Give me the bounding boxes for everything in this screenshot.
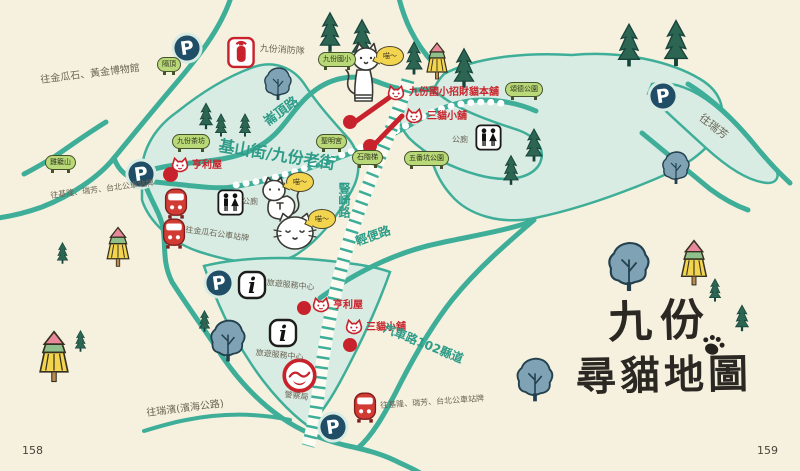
bus-stop-icon bbox=[163, 186, 189, 220]
fire-station-icon bbox=[227, 36, 255, 69]
lucky-cat-shop-icon bbox=[311, 296, 331, 314]
shop-label: 九份國小招財貓本舖 bbox=[409, 88, 499, 98]
page-number-right: 159 bbox=[757, 444, 778, 457]
location-dot bbox=[297, 301, 311, 315]
bus-stop-icon bbox=[161, 216, 187, 250]
colorful-tree-icon bbox=[104, 226, 132, 270]
svg-text:P: P bbox=[211, 273, 227, 296]
lucky-cat-shop-icon bbox=[344, 318, 364, 336]
place-plaque: 聖明宮 bbox=[316, 134, 347, 149]
direction-label: 旅遊服務中心 bbox=[255, 349, 304, 362]
place-plaque: 雞籠山 bbox=[45, 155, 76, 170]
conifer-tree-icon bbox=[238, 110, 252, 140]
place-plaque: 隔頂 bbox=[157, 57, 181, 72]
svg-text:P: P bbox=[655, 86, 671, 109]
conifer-tree-icon bbox=[734, 300, 750, 336]
map-title-line1: 九份 bbox=[607, 298, 712, 346]
shop-label: 亨利屋 bbox=[333, 301, 363, 311]
direction-label: 往金瓜石、黃金博物館 bbox=[40, 64, 140, 86]
parking-icon: P bbox=[202, 266, 236, 300]
page-number-left: 158 bbox=[22, 444, 43, 457]
map-items-layer: PPPPPii九份國小招財貓本舖三貓小舖亨利屋亨利屋三貓小舖隔頂九份國小頌德公園… bbox=[0, 0, 800, 471]
tourist-info-icon: i bbox=[237, 270, 267, 300]
place-plaque: 頌德公園 bbox=[505, 82, 543, 97]
shop-label: 亨利屋 bbox=[192, 161, 222, 171]
direction-label: 往基隆、瑞芳、台北公車站牌 bbox=[380, 395, 484, 410]
place-plaque: 九份國小 bbox=[318, 52, 356, 67]
direction-label: 公廁 bbox=[242, 198, 258, 206]
direction-label: 旅遊服務中心 bbox=[266, 279, 315, 292]
conifer-tree-icon bbox=[502, 150, 520, 190]
conifer-tree-icon bbox=[56, 240, 69, 266]
direction-label: 警察局 bbox=[284, 391, 309, 402]
conifer-tree-icon bbox=[616, 16, 642, 74]
direction-label: 往金瓜石公車站牌 bbox=[185, 226, 249, 243]
conifer-tree-icon bbox=[74, 326, 87, 356]
direction-label: 往瑞濱(濱海公路) bbox=[146, 400, 224, 419]
map-canvas: PPPPPii九份國小招財貓本舖三貓小舖亨利屋亨利屋三貓小舖隔頂九份國小頌德公園… bbox=[0, 0, 800, 471]
colorful-tree-icon bbox=[36, 330, 72, 386]
cat-speech-bubble: 喵～ bbox=[286, 172, 314, 192]
conifer-tree-icon bbox=[318, 8, 342, 56]
shop-label: 三貓小舖 bbox=[427, 112, 467, 122]
conifer-tree-icon bbox=[198, 98, 214, 134]
lucky-cat-shop-icon bbox=[404, 107, 424, 125]
lucky-cat-shop-icon bbox=[170, 156, 190, 174]
police-station-icon bbox=[281, 357, 318, 394]
svg-text:i: i bbox=[279, 321, 287, 346]
svg-text:i: i bbox=[248, 273, 256, 298]
cat-speech-bubble: 喵～ bbox=[308, 209, 336, 229]
restroom-icon bbox=[475, 124, 502, 151]
place-plaque: 五番坑公園 bbox=[404, 151, 449, 166]
direction-label: 往瑞芳 bbox=[697, 112, 730, 141]
location-dot bbox=[343, 338, 357, 352]
parking-icon: P bbox=[646, 79, 680, 113]
place-plaque: 石階梯 bbox=[352, 150, 383, 165]
direction-label: 公廁 bbox=[452, 136, 468, 144]
cat-speech-bubble: 喵～ bbox=[376, 46, 404, 66]
colorful-tree-icon bbox=[424, 42, 450, 82]
restroom-icon bbox=[217, 189, 244, 216]
blue-tree-icon bbox=[208, 318, 248, 364]
road-name-label: 輕便路 bbox=[354, 224, 392, 247]
blue-tree-icon bbox=[606, 240, 652, 294]
road-name-label: 豎崎路 bbox=[338, 182, 350, 218]
blue-tree-icon bbox=[660, 150, 692, 186]
direction-label: 九份消防隊 bbox=[259, 45, 305, 57]
svg-text:P: P bbox=[325, 417, 341, 440]
colorful-tree-icon bbox=[678, 238, 710, 290]
parking-icon: P bbox=[316, 410, 350, 444]
place-plaque: 九份茶坊 bbox=[172, 134, 210, 149]
location-dot bbox=[343, 115, 357, 129]
tourist-info-icon: i bbox=[268, 318, 298, 348]
conifer-tree-icon bbox=[662, 12, 690, 74]
conifer-tree-icon bbox=[524, 122, 544, 168]
map-title-line2: 尋貓地圖 bbox=[576, 354, 753, 397]
road-name-label: 汽車路102縣道 bbox=[382, 322, 465, 365]
bus-stop-icon bbox=[352, 390, 378, 424]
blue-tree-icon bbox=[514, 356, 556, 404]
svg-text:P: P bbox=[179, 38, 195, 61]
conifer-tree-icon bbox=[404, 38, 424, 78]
lucky-cat-shop-icon bbox=[386, 84, 406, 102]
